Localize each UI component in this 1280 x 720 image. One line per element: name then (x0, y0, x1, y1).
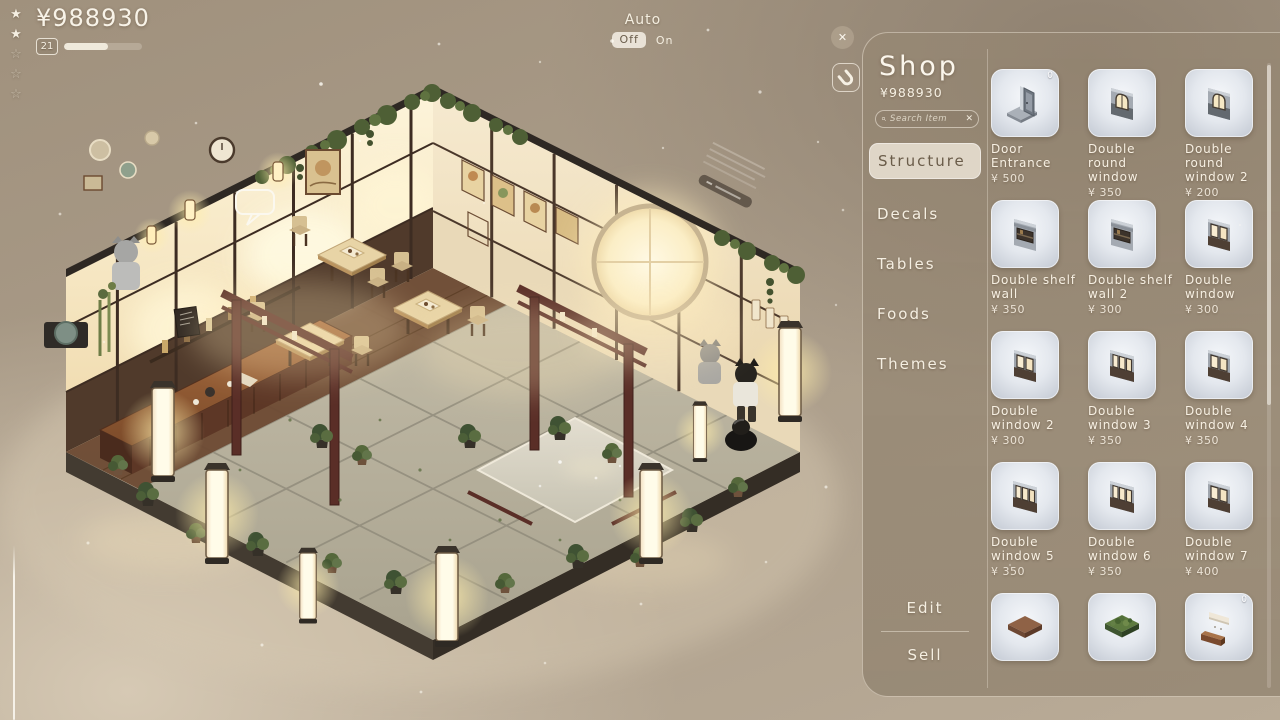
panel-actions: Edit Sell (863, 587, 987, 676)
shop-item-price: ¥ 500 (991, 172, 1081, 185)
shop-item-tile[interactable] (1088, 200, 1156, 268)
star-filled-icon: ★ (10, 8, 22, 21)
shop-item-thumbnail (1001, 603, 1049, 651)
level-progress-track (64, 43, 142, 50)
shop-item-price: ¥ 300 (991, 434, 1081, 447)
shop-item-thumbnail (1098, 603, 1146, 651)
game-stage: ★★☆☆☆ ¥988930 21 Auto Off On ✕ Shop ¥988… (0, 0, 1280, 720)
auto-control: Auto Off On (598, 12, 688, 48)
shop-item-price: ¥ 300 (1088, 303, 1178, 316)
auto-label: Auto (598, 12, 688, 28)
auto-off-button[interactable]: Off (612, 32, 645, 48)
shop-item-double-window-5[interactable]: Double window 5 ¥ 350 (991, 462, 1081, 593)
shop-panel: Shop ¥988930 ⌕ ✕ Structure Decals Tables… (862, 32, 1280, 697)
shop-item-name: Double window (1185, 273, 1266, 301)
shop-item-thumbnail (1001, 210, 1049, 258)
shop-item-wall-counter[interactable]: 0 (1185, 593, 1266, 696)
shop-item-name: Double window 3 (1088, 404, 1178, 432)
sell-button[interactable]: Sell (863, 634, 987, 676)
shop-item-double-window-2[interactable]: Double window 2 ¥ 300 (991, 331, 1081, 462)
shop-item-tile[interactable] (1185, 200, 1253, 268)
panel-divider (987, 49, 988, 688)
shop-item-tile[interactable] (991, 462, 1059, 530)
shop-item-price: ¥ 200 (1185, 186, 1266, 199)
shop-title: Shop (879, 51, 959, 82)
shop-item-name: Double window 7 (1185, 535, 1266, 563)
shop-item-double-window-7[interactable]: Double window 7 ¥ 400 (1185, 462, 1266, 593)
shop-item-double-round-window[interactable]: Double round window ¥ 350 (1088, 69, 1178, 200)
shop-item-tile[interactable] (1088, 331, 1156, 399)
shop-item-tile[interactable] (991, 593, 1059, 661)
search-input[interactable] (890, 114, 961, 124)
category-foods[interactable]: Foods (863, 289, 987, 339)
actions-divider (881, 631, 969, 632)
shop-item-grass-tile[interactable] (1088, 593, 1178, 696)
shop-item-grid: 0 Door Entrance ¥ 500 Double round windo… (991, 61, 1266, 696)
shop-item-thumbnail (1195, 79, 1243, 127)
search-clear-icon[interactable]: ✕ (965, 114, 973, 124)
magnet-snap-button[interactable] (832, 63, 860, 92)
edit-button[interactable]: Edit (863, 587, 987, 629)
shop-item-door-entrance[interactable]: 0 Door Entrance ¥ 500 (991, 69, 1081, 200)
shop-item-name: Double window 6 (1088, 535, 1178, 563)
shop-item-name: Double round window (1088, 142, 1178, 184)
shop-item-thumbnail (1195, 603, 1243, 651)
shop-item-tile[interactable] (1088, 462, 1156, 530)
level-badge: 21 (36, 38, 58, 55)
auto-on-button[interactable]: On (656, 34, 674, 47)
game-scene[interactable] (0, 0, 862, 720)
shop-item-double-window-4[interactable]: Double window 4 ¥ 350 (1185, 331, 1266, 462)
level-progress-fill (64, 43, 108, 50)
shop-item-double-window-6[interactable]: Double window 6 ¥ 350 (1088, 462, 1178, 593)
category-list: Structure Decals Tables Foods Themes (863, 139, 987, 389)
shop-item-price: ¥ 300 (1185, 303, 1266, 316)
wall-sign (693, 143, 768, 209)
shop-item-double-shelf-wall-2[interactable]: Double shelf wall 2 ¥ 300 (1088, 200, 1178, 331)
shop-item-tile[interactable]: 0 (1185, 593, 1253, 661)
shop-item-thumbnail (1098, 472, 1146, 520)
shop-sidebar: Shop ¥988930 ⌕ ✕ Structure Decals Tables… (863, 33, 987, 696)
category-tables[interactable]: Tables (863, 239, 987, 289)
shop-scrollbar[interactable] (1267, 63, 1271, 688)
currency-display: ¥988930 (36, 4, 150, 32)
level-progress: 21 (36, 38, 142, 55)
shop-item-tile[interactable] (1185, 69, 1253, 137)
shop-item-thumbnail (1001, 472, 1049, 520)
shop-item-name: Double shelf wall 2 (1088, 273, 1178, 301)
shop-item-name: Double window 5 (991, 535, 1081, 563)
shop-item-price: ¥ 350 (991, 565, 1081, 578)
shop-item-thumbnail (1098, 210, 1146, 258)
shop-item-badge: 0 (1241, 595, 1247, 605)
star-empty-icon: ☆ (10, 48, 22, 61)
shop-item-floor-tile[interactable] (991, 593, 1081, 696)
close-panel-button[interactable]: ✕ (831, 26, 854, 49)
shop-item-thumbnail (1098, 79, 1146, 127)
category-themes[interactable]: Themes (863, 339, 987, 389)
shop-item-double-window-3[interactable]: Double window 3 ¥ 350 (1088, 331, 1178, 462)
shop-item-thumbnail (1098, 341, 1146, 389)
shop-item-tile[interactable] (991, 200, 1059, 268)
shop-item-name: Double window 2 (991, 404, 1081, 432)
shop-item-thumbnail (1001, 341, 1049, 389)
screen-edge-accent (13, 545, 15, 720)
shop-item-name: Double window 4 (1185, 404, 1266, 432)
shop-item-name: Door Entrance (991, 142, 1081, 170)
search-icon: ⌕ (881, 114, 886, 124)
category-decals[interactable]: Decals (863, 189, 987, 239)
shop-item-tile[interactable] (991, 331, 1059, 399)
shop-item-tile[interactable] (1185, 331, 1253, 399)
star-empty-icon: ☆ (10, 88, 22, 101)
search-box[interactable]: ⌕ ✕ (875, 110, 979, 128)
shop-item-price: ¥ 350 (1088, 565, 1178, 578)
star-empty-icon: ☆ (10, 68, 22, 81)
shop-item-price: ¥ 350 (1088, 434, 1178, 447)
shop-item-tile[interactable] (1088, 69, 1156, 137)
shop-item-price: ¥ 400 (1185, 565, 1266, 578)
shop-item-thumbnail (1195, 341, 1243, 389)
shop-item-name: Double shelf wall (991, 273, 1081, 301)
scrollbar-thumb[interactable] (1267, 65, 1271, 405)
close-icon: ✕ (838, 31, 847, 44)
shop-item-double-round-window-2[interactable]: Double round window 2 ¥ 200 (1185, 69, 1266, 200)
shop-item-badge: 0 (1047, 71, 1053, 81)
shop-item-double-window[interactable]: Double window ¥ 300 (1185, 200, 1266, 331)
shop-item-tile[interactable]: 0 (991, 69, 1059, 137)
magnet-icon (837, 69, 855, 87)
shop-item-price: ¥ 350 (991, 303, 1081, 316)
shop-item-thumbnail (1195, 210, 1243, 258)
shop-item-tile[interactable] (1088, 593, 1156, 661)
category-structure[interactable]: Structure (869, 143, 981, 179)
shop-item-tile[interactable] (1185, 462, 1253, 530)
star-rating: ★★☆☆☆ (6, 8, 26, 101)
shop-item-name: Double round window 2 (1185, 142, 1266, 184)
shop-item-thumbnail (1195, 472, 1243, 520)
shop-balance: ¥988930 (880, 85, 943, 100)
auto-toggle[interactable]: Off On (598, 32, 688, 48)
shop-item-double-shelf-wall[interactable]: Double shelf wall ¥ 350 (991, 200, 1081, 331)
star-filled-icon: ★ (10, 28, 22, 41)
shop-item-price: ¥ 350 (1088, 186, 1178, 199)
shop-item-thumbnail (1001, 79, 1049, 127)
shop-item-price: ¥ 350 (1185, 434, 1266, 447)
